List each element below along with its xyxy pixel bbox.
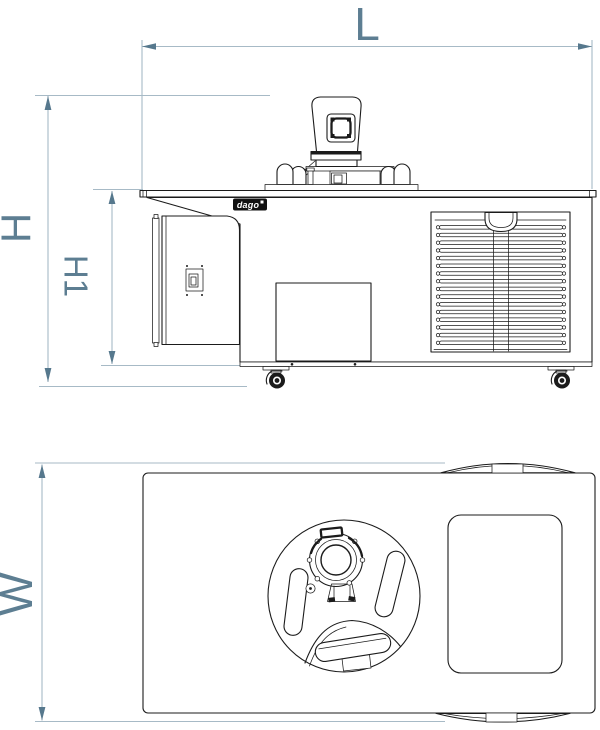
window-corner bbox=[347, 118, 351, 122]
arrowhead-down bbox=[39, 707, 46, 721]
vent-slat-curl bbox=[436, 272, 439, 275]
tabletop bbox=[140, 191, 596, 198]
vent-slat bbox=[440, 249, 563, 253]
vent-slat-curl bbox=[562, 272, 565, 275]
lock-screw bbox=[201, 265, 203, 267]
vent-slat-curl bbox=[436, 318, 439, 321]
vent-slat bbox=[440, 241, 563, 245]
vent-slat-curl bbox=[562, 341, 565, 344]
left-door bbox=[153, 215, 240, 347]
vent-slat bbox=[440, 279, 563, 283]
dimensional-drawing: L H H1 bbox=[0, 0, 600, 730]
cross-beam bbox=[306, 167, 394, 172]
window-corner bbox=[331, 134, 335, 138]
vent-slat-curl bbox=[562, 295, 565, 298]
post-outer-right bbox=[394, 164, 410, 185]
dim-label-height: H bbox=[0, 213, 40, 243]
vent-slat-curl bbox=[562, 287, 565, 290]
lock-screw bbox=[201, 294, 203, 296]
vent-slat-curl bbox=[562, 256, 565, 259]
vent-slat bbox=[440, 333, 563, 337]
vent-slat-curl bbox=[562, 233, 565, 236]
vent-slat bbox=[440, 326, 563, 330]
vent-slat-curl bbox=[562, 333, 565, 336]
vent-slat-curl bbox=[562, 326, 565, 329]
vent-slat-curl bbox=[436, 264, 439, 267]
door-leaf bbox=[162, 216, 240, 345]
vent-slat-curl bbox=[436, 287, 439, 290]
tabletop-slab bbox=[140, 191, 596, 198]
dim-label-width: W bbox=[0, 572, 42, 616]
caster-wheel bbox=[554, 373, 570, 389]
mixer-assembly bbox=[265, 97, 418, 191]
ring-flange-bump bbox=[360, 558, 365, 563]
arrowhead-down bbox=[45, 368, 52, 382]
vent-slat-curl bbox=[562, 303, 565, 306]
vent-slat bbox=[440, 318, 563, 322]
handle-center bbox=[492, 464, 523, 473]
vent-slat-curl bbox=[562, 280, 565, 283]
top-handle bbox=[441, 464, 575, 474]
ring-flange-bump bbox=[347, 581, 352, 586]
ring-flange-bump bbox=[307, 558, 312, 563]
caster-right bbox=[548, 367, 574, 389]
arrowhead-right bbox=[578, 43, 592, 50]
vent-slat-curl bbox=[436, 280, 439, 283]
vent-slat bbox=[440, 287, 563, 291]
lock-screw bbox=[186, 265, 188, 267]
bracket-pad bbox=[328, 597, 335, 602]
vent-slat-curl bbox=[436, 226, 439, 229]
vent-slat-curl bbox=[562, 310, 565, 313]
vent-slat-curl bbox=[436, 341, 439, 344]
window-corner bbox=[331, 118, 335, 122]
arrowhead-up bbox=[45, 96, 52, 110]
brand-logo: dago bbox=[233, 199, 267, 211]
vent-slat bbox=[440, 303, 563, 307]
vent-slat-curl bbox=[436, 249, 439, 252]
caster-mount bbox=[263, 367, 289, 371]
vent-slat bbox=[440, 256, 563, 260]
front-panel bbox=[276, 283, 371, 361]
bottom-handle bbox=[436, 713, 570, 722]
plan-view: W bbox=[0, 463, 595, 722]
logo-mark bbox=[261, 201, 264, 204]
vent-slat bbox=[440, 272, 563, 276]
window-corner bbox=[347, 134, 351, 138]
vent-slat-curl bbox=[436, 241, 439, 244]
ring-flange-bump bbox=[315, 576, 320, 581]
rod-cap bbox=[307, 168, 314, 171]
front-elevation-view: L H H1 bbox=[0, 0, 596, 389]
post-outer-left bbox=[277, 164, 293, 185]
vent-slat bbox=[440, 295, 563, 299]
vent-slat-curl bbox=[562, 264, 565, 267]
arrowhead-up bbox=[39, 465, 46, 479]
vent-slat-curl bbox=[436, 295, 439, 298]
pivot-dot bbox=[309, 587, 312, 590]
caster-wheel bbox=[269, 373, 285, 389]
hinge-tab bbox=[154, 215, 158, 219]
vent-slat-curl bbox=[436, 303, 439, 306]
rod bbox=[308, 170, 313, 185]
vent-slat-curl bbox=[436, 310, 439, 313]
vent-slat-curl bbox=[436, 333, 439, 336]
vent-slat-curl bbox=[562, 226, 565, 229]
handle-center bbox=[486, 713, 517, 722]
vent-slat-curl bbox=[436, 326, 439, 329]
dim-label-length: L bbox=[354, 0, 380, 50]
mixer-base-plate bbox=[265, 185, 418, 191]
length-dimension: L bbox=[142, 0, 592, 189]
vent-slat bbox=[440, 233, 563, 237]
arrowhead-down bbox=[109, 351, 116, 364]
base-screw bbox=[354, 363, 357, 366]
arrowhead-up bbox=[109, 191, 116, 204]
door-hinge-strip bbox=[153, 218, 160, 343]
hinge-tab bbox=[154, 343, 158, 347]
ring-top-tab bbox=[321, 527, 343, 537]
base-screw bbox=[291, 363, 294, 366]
vent-slat bbox=[440, 264, 563, 268]
caster-left bbox=[263, 367, 289, 389]
logo-text: dago bbox=[237, 200, 260, 210]
arrowhead-left bbox=[142, 43, 156, 50]
lock-screw bbox=[186, 294, 188, 296]
caster-mount bbox=[548, 367, 574, 371]
motor-neck bbox=[316, 160, 357, 167]
vent-slat-curl bbox=[562, 241, 565, 244]
dim-label-inner-height: H1 bbox=[58, 255, 95, 297]
service-panel bbox=[448, 515, 562, 673]
vent-grille bbox=[431, 212, 570, 352]
vent-slat-curl bbox=[436, 256, 439, 259]
vent-slat-curl bbox=[562, 249, 565, 252]
vent-slat bbox=[440, 341, 563, 345]
vent-slat-curl bbox=[562, 318, 565, 321]
vent-slat-curl bbox=[436, 233, 439, 236]
vent-slat bbox=[440, 310, 563, 314]
technical-drawing-canvas: L H H1 bbox=[0, 0, 600, 730]
